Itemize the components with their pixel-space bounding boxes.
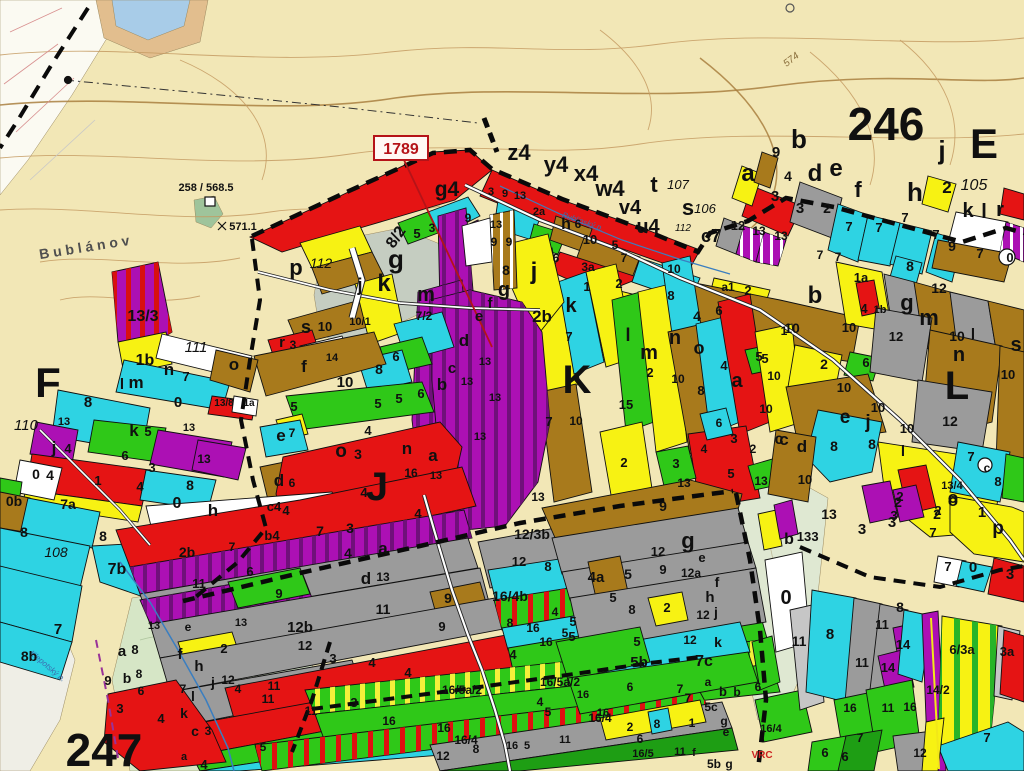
map-label: 9 xyxy=(772,144,780,161)
map-label: 4 xyxy=(784,168,792,184)
map-label: 6 xyxy=(121,448,128,463)
map-label: 1b xyxy=(874,304,887,316)
map-label: l xyxy=(191,688,195,704)
map-label: 4 xyxy=(693,308,701,324)
map-label: 13 xyxy=(531,490,545,504)
map-label: 8 xyxy=(667,288,674,303)
map-label: 2 xyxy=(663,600,670,615)
map-label: 8 xyxy=(136,667,143,681)
map-label: 571.1 xyxy=(229,221,257,233)
map-label: 5c xyxy=(704,700,718,714)
map-label: 6 xyxy=(715,303,722,318)
map-label: 4 xyxy=(344,545,352,561)
map-label: 11 xyxy=(792,633,807,649)
map-label: 2 xyxy=(620,455,627,470)
map-label: 0b xyxy=(6,493,22,509)
map-label: 16 xyxy=(903,700,917,714)
map-label: 3 xyxy=(488,186,494,198)
map-label: l xyxy=(120,376,124,393)
map-label: 112 xyxy=(310,255,333,271)
map-label: 15 xyxy=(619,397,633,412)
map-label: 13/3 xyxy=(127,308,158,325)
map-label: 13 xyxy=(58,416,70,428)
map-label: d xyxy=(808,160,823,187)
map-label: 13/8 xyxy=(214,398,234,409)
map-label: 9 xyxy=(948,238,956,254)
map-label: 2 xyxy=(820,356,828,372)
map-label: 12/3b xyxy=(514,526,550,542)
map-label: 5 xyxy=(609,590,616,605)
map-label: 7/2 xyxy=(416,309,433,323)
map-label: 16/4 xyxy=(760,723,782,735)
map-label: 6 xyxy=(841,749,848,764)
map-label: 3 xyxy=(1006,566,1014,583)
map-label: 8 xyxy=(830,438,838,454)
map-label: 10/1 xyxy=(349,316,370,328)
map-label: 247 xyxy=(66,724,143,771)
map-label: 3 xyxy=(811,529,818,544)
map-label: k xyxy=(180,705,188,721)
map-label: 4 xyxy=(720,358,728,373)
map-label: 3 xyxy=(290,338,297,352)
map-label: 7 xyxy=(929,525,936,540)
map-label: 10 xyxy=(667,262,681,276)
map-label: 10 xyxy=(798,472,812,487)
map-label: b4 xyxy=(264,528,280,543)
map-label: J xyxy=(366,465,388,509)
map-label: 6 xyxy=(246,564,253,579)
map-label: m xyxy=(919,305,939,330)
map-label: 11 xyxy=(882,701,895,715)
map-label: a xyxy=(181,751,188,763)
map-label: 8 xyxy=(697,383,704,398)
map-label: b xyxy=(733,685,740,699)
map-label: l xyxy=(971,326,975,343)
map-label: 14 xyxy=(896,637,911,652)
map-label: h xyxy=(561,216,571,233)
map-label: 9 xyxy=(506,235,513,249)
map-label: 16/4b xyxy=(492,588,528,604)
map-label: j xyxy=(937,135,945,165)
map-label: d xyxy=(361,569,371,588)
map-label: 2 xyxy=(615,276,622,291)
map-label: 14 xyxy=(881,660,896,675)
map-label: 12 xyxy=(436,749,450,763)
map-label: 7 xyxy=(845,219,852,234)
map-label: 13 xyxy=(774,229,788,243)
map-label: 3a xyxy=(1000,644,1015,659)
map-label: m xyxy=(128,373,143,392)
map-label: 0 xyxy=(780,587,791,609)
map-label: 12 xyxy=(913,746,927,760)
map-label: 4 xyxy=(136,479,144,494)
map-label: 12b xyxy=(287,619,313,636)
map-label: l xyxy=(981,201,987,223)
map-label: 10 xyxy=(842,320,856,335)
map-label: 0 xyxy=(174,394,182,411)
map-label: 13 xyxy=(148,620,160,632)
map-label: 8b xyxy=(21,648,37,664)
map-label: 2 xyxy=(823,200,831,216)
map-label: a1 xyxy=(721,280,735,294)
map-label: 1 xyxy=(781,324,788,338)
map-label: 3 xyxy=(672,456,679,471)
map-label: d xyxy=(274,471,284,490)
forestry-map[interactable]: 1789574258 / 568.5571.1B u b l á n o vBu… xyxy=(0,0,1024,771)
map-label: 3 xyxy=(354,446,362,462)
parcel xyxy=(1000,630,1024,702)
map-label: 8 xyxy=(473,742,480,756)
map-label: 5 xyxy=(374,396,381,411)
parcel xyxy=(950,442,1010,502)
map-label: 2 xyxy=(896,489,903,504)
map-label: 11 xyxy=(559,734,571,746)
map-label: 7 xyxy=(54,621,62,638)
map-label: 111 xyxy=(185,339,208,356)
map-label: j xyxy=(713,604,718,620)
map-label: f xyxy=(692,747,696,759)
map-label: 13 xyxy=(197,452,211,466)
map-label: 10 xyxy=(337,374,354,391)
map-label: b xyxy=(791,124,807,154)
map-label: 8 xyxy=(654,717,661,731)
map-label: r xyxy=(996,199,1004,221)
map-label: 4 xyxy=(235,682,242,696)
map-label: c4 xyxy=(267,499,282,514)
map-label: 7 xyxy=(944,559,951,574)
map-label: 8 xyxy=(131,642,138,657)
map-label: 8 xyxy=(906,258,914,274)
map-label: a xyxy=(428,446,438,465)
map-label: 6 xyxy=(138,684,145,698)
map-label: 13 xyxy=(474,431,486,443)
map-label: 8 xyxy=(826,626,834,643)
map-label: 9 xyxy=(465,211,472,225)
map-label: 6 xyxy=(637,732,644,746)
map-label: f xyxy=(854,177,862,202)
map-label: 8 xyxy=(502,262,510,278)
map-label: m xyxy=(417,284,435,306)
map-label: 3 xyxy=(858,521,866,538)
map-label: k xyxy=(565,295,577,317)
map-label: 6 xyxy=(862,355,869,370)
map-label: 13 xyxy=(821,506,837,522)
map-label: 108 xyxy=(44,544,68,560)
map-label: F xyxy=(35,359,61,406)
map-label: 5b xyxy=(707,757,721,771)
map-label: 10 xyxy=(1001,367,1015,382)
map-label: 7 xyxy=(983,730,990,745)
map-label: 4 xyxy=(46,467,54,483)
map-label: 2b xyxy=(532,307,552,326)
parcel xyxy=(462,218,492,266)
map-label: b xyxy=(784,531,794,548)
map-label: 10 xyxy=(767,369,781,383)
map-canvas[interactable]: 1789574258 / 568.5571.1B u b l á n o vBu… xyxy=(0,0,1024,771)
map-label: l xyxy=(901,443,905,460)
map-label: 4 xyxy=(509,647,517,662)
map-label: 16 xyxy=(437,721,451,735)
map-label: k xyxy=(962,200,974,222)
map-label: e xyxy=(840,407,851,428)
map-label: 14/2 xyxy=(926,683,950,697)
map-label: g xyxy=(681,528,694,553)
map-label: e xyxy=(185,620,192,634)
map-label: e xyxy=(829,155,842,182)
map-label: 11 xyxy=(376,601,391,617)
map-label: 13 xyxy=(489,392,501,404)
map-label: b xyxy=(437,375,447,394)
map-label: 7 xyxy=(976,246,983,261)
map-label: 8 xyxy=(868,436,876,452)
map-label: 5 xyxy=(727,466,734,481)
map-label: c xyxy=(448,360,456,377)
map-label: 10 xyxy=(583,232,597,247)
map-label: m xyxy=(640,342,658,364)
map-label: 16 xyxy=(843,701,857,715)
map-label: 13 xyxy=(479,356,491,368)
map-label: 6 xyxy=(289,476,296,490)
map-label: 1a xyxy=(854,270,869,285)
map-label: 12 xyxy=(651,544,665,559)
map-symbol-circle xyxy=(65,77,72,84)
map-label: 8 xyxy=(896,599,904,615)
map-label: 7a xyxy=(60,496,76,512)
map-label: 8 xyxy=(20,524,28,540)
map-label: j xyxy=(530,258,538,285)
map-label: 1 xyxy=(689,716,696,730)
map-label: 1 xyxy=(94,473,101,488)
map-label: 7 xyxy=(289,426,296,440)
map-label: 3 xyxy=(329,651,336,666)
map-label: 0 xyxy=(173,495,182,512)
map-label: 4 xyxy=(414,506,422,521)
map-label: 1 xyxy=(978,504,986,521)
map-label: 105 xyxy=(961,177,988,194)
map-label: 6 xyxy=(417,386,424,401)
map-label: a xyxy=(731,370,743,392)
map-label: 4 xyxy=(282,503,290,518)
map-label: 7 xyxy=(901,210,908,225)
map-label: 7 xyxy=(932,227,939,242)
map-label: 0 xyxy=(32,466,40,482)
map-label: 16 xyxy=(577,689,589,701)
map-label: 5 xyxy=(260,740,267,754)
map-label: y4 xyxy=(544,152,569,177)
map-label: 6/3a xyxy=(949,642,975,657)
map-label: 4 xyxy=(360,485,368,500)
map-label: 3 xyxy=(148,460,155,475)
map-label: a xyxy=(378,539,388,558)
map-label: 5 xyxy=(761,351,768,366)
map-label: 9 xyxy=(502,188,508,200)
map-label: e xyxy=(698,550,705,565)
map-label: 4 xyxy=(64,441,72,456)
map-label: 10 xyxy=(318,319,332,334)
building-symbol xyxy=(205,197,215,206)
map-label: 2a xyxy=(533,206,546,218)
map-label: 9 xyxy=(444,590,452,606)
map-label: 1a xyxy=(243,398,255,409)
map-label: 13 xyxy=(430,470,442,482)
map-label: 3 xyxy=(205,724,212,738)
map-label: 11 xyxy=(262,692,275,706)
map-label: 2b xyxy=(179,544,195,560)
map-label: 5 xyxy=(290,399,297,414)
map-label: 0 xyxy=(1006,250,1013,265)
map-label: 13 xyxy=(490,219,502,231)
map-label: 4 xyxy=(364,423,372,438)
map-label: 6 xyxy=(821,745,828,760)
map-label: 12 xyxy=(696,608,710,622)
map-label: 5 xyxy=(144,424,151,439)
map-label: 13 xyxy=(797,529,811,544)
map-label: 8 xyxy=(544,559,551,574)
map-label: 7 xyxy=(967,449,974,464)
map-label: 107 xyxy=(667,177,689,192)
map-label: c xyxy=(191,723,199,739)
map-label: 3a xyxy=(581,260,595,274)
map-label: 4 xyxy=(552,605,559,619)
map-label: d xyxy=(459,331,469,350)
map-label: n xyxy=(164,360,174,379)
map-label: b xyxy=(719,684,727,699)
map-label: 5b xyxy=(630,654,648,671)
map-label: 7 xyxy=(685,691,692,705)
map-label: 16/5 xyxy=(632,748,653,760)
map-label: k xyxy=(129,421,139,440)
map-label: o xyxy=(948,488,958,507)
map-label: 2 xyxy=(744,283,751,298)
map-label: a xyxy=(705,675,712,689)
map-label: 5 xyxy=(612,238,619,252)
map-label: 9 xyxy=(491,235,498,249)
map-label: 11 xyxy=(305,704,318,718)
map-label: 3 xyxy=(429,221,436,235)
map-label: 16 xyxy=(526,621,540,635)
map-label: E xyxy=(970,120,998,167)
map-label: n xyxy=(953,344,965,366)
map-label: 13 xyxy=(235,617,247,629)
map-label: 0 xyxy=(969,559,977,576)
map-label: 3 xyxy=(350,695,357,710)
map-label: 7 xyxy=(835,250,842,264)
map-label: 3 xyxy=(796,200,804,217)
map-label: 10 xyxy=(837,380,851,395)
map-label: 12 xyxy=(512,554,526,569)
map-label: 7 xyxy=(180,682,187,696)
map-label: p xyxy=(992,518,1004,539)
map-label: 112 xyxy=(675,223,691,234)
map-label: s xyxy=(301,317,311,337)
map-label: 2 xyxy=(942,178,951,197)
map-label: 16 xyxy=(382,714,396,728)
map-label: 12 xyxy=(731,218,745,233)
map-label: c xyxy=(779,430,788,449)
map-label: z4 xyxy=(507,140,531,165)
map-label: o xyxy=(694,338,705,358)
map-label: e xyxy=(276,426,285,445)
map-label: f xyxy=(715,574,720,590)
map-label: 1b xyxy=(136,352,155,369)
map-label: 16 xyxy=(506,740,518,752)
map-label: 12a xyxy=(681,566,701,580)
map-label: 8 xyxy=(84,394,92,411)
map-label: o xyxy=(229,355,239,374)
map-label: 7 xyxy=(875,220,882,235)
map-label: a xyxy=(741,160,755,187)
map-label: 7 xyxy=(817,248,824,262)
map-label: g xyxy=(900,290,913,315)
map-label: 2 xyxy=(934,503,941,518)
map-label: 13 xyxy=(514,190,526,202)
map-label: h xyxy=(208,501,218,520)
map-label: c xyxy=(984,461,991,475)
map-label: 1 xyxy=(583,279,590,294)
map-label: 9 xyxy=(275,586,282,601)
map-label: 4 xyxy=(537,695,544,709)
map-label: 3 xyxy=(346,520,354,536)
parcel xyxy=(1002,454,1024,502)
map-label: 9 xyxy=(659,498,667,514)
map-label: 3 xyxy=(730,431,737,446)
map-label: 7 xyxy=(677,682,684,696)
map-label: 12 xyxy=(942,413,958,429)
map-label: 7c xyxy=(695,653,713,670)
map-label: 258 / 568.5 xyxy=(178,182,233,194)
map-label: 11 xyxy=(268,679,281,693)
map-label: 16 xyxy=(539,635,553,649)
map-label: 13 xyxy=(183,422,195,434)
map-label: 10 xyxy=(871,400,885,415)
map-label: 4a xyxy=(588,569,605,586)
map-label: 11 xyxy=(855,655,869,670)
map-label: 9 xyxy=(104,673,111,688)
map-label: 5 xyxy=(569,614,576,629)
map-label: b xyxy=(808,282,823,309)
map-label: 11 xyxy=(674,746,686,758)
map-label: 8 xyxy=(186,477,194,493)
map-label: 3 xyxy=(116,701,123,716)
map-label: 8 xyxy=(99,528,107,544)
map-label: 16/5a/2 xyxy=(540,675,580,689)
map-label: 7 xyxy=(182,369,189,384)
map-label: 110 xyxy=(14,417,39,434)
map-label: k xyxy=(714,634,722,650)
map-label: 14 xyxy=(326,352,339,364)
map-label: 246 xyxy=(848,98,925,150)
map-label: 4 xyxy=(368,655,376,670)
map-label: 7 xyxy=(621,251,628,265)
map-label: t xyxy=(650,172,658,197)
map-label: 13 xyxy=(461,376,473,388)
map-label: 16/5a/2 xyxy=(442,683,482,697)
map-label: L xyxy=(945,364,969,408)
map-label: u4 xyxy=(636,216,660,238)
map-label: h xyxy=(907,177,923,207)
map-label: 12 xyxy=(683,633,697,647)
map-label: 5 xyxy=(568,629,575,644)
map-label: a xyxy=(118,643,127,660)
map-label: s xyxy=(682,195,694,220)
map-label: 8 xyxy=(628,602,635,617)
map-label: 4 xyxy=(157,711,165,726)
map-label: 11 xyxy=(875,617,889,632)
callout-text: 1789 xyxy=(383,141,419,158)
map-label: 6 xyxy=(553,251,560,265)
map-label: j xyxy=(356,275,362,295)
map-label: 12 xyxy=(298,638,312,653)
